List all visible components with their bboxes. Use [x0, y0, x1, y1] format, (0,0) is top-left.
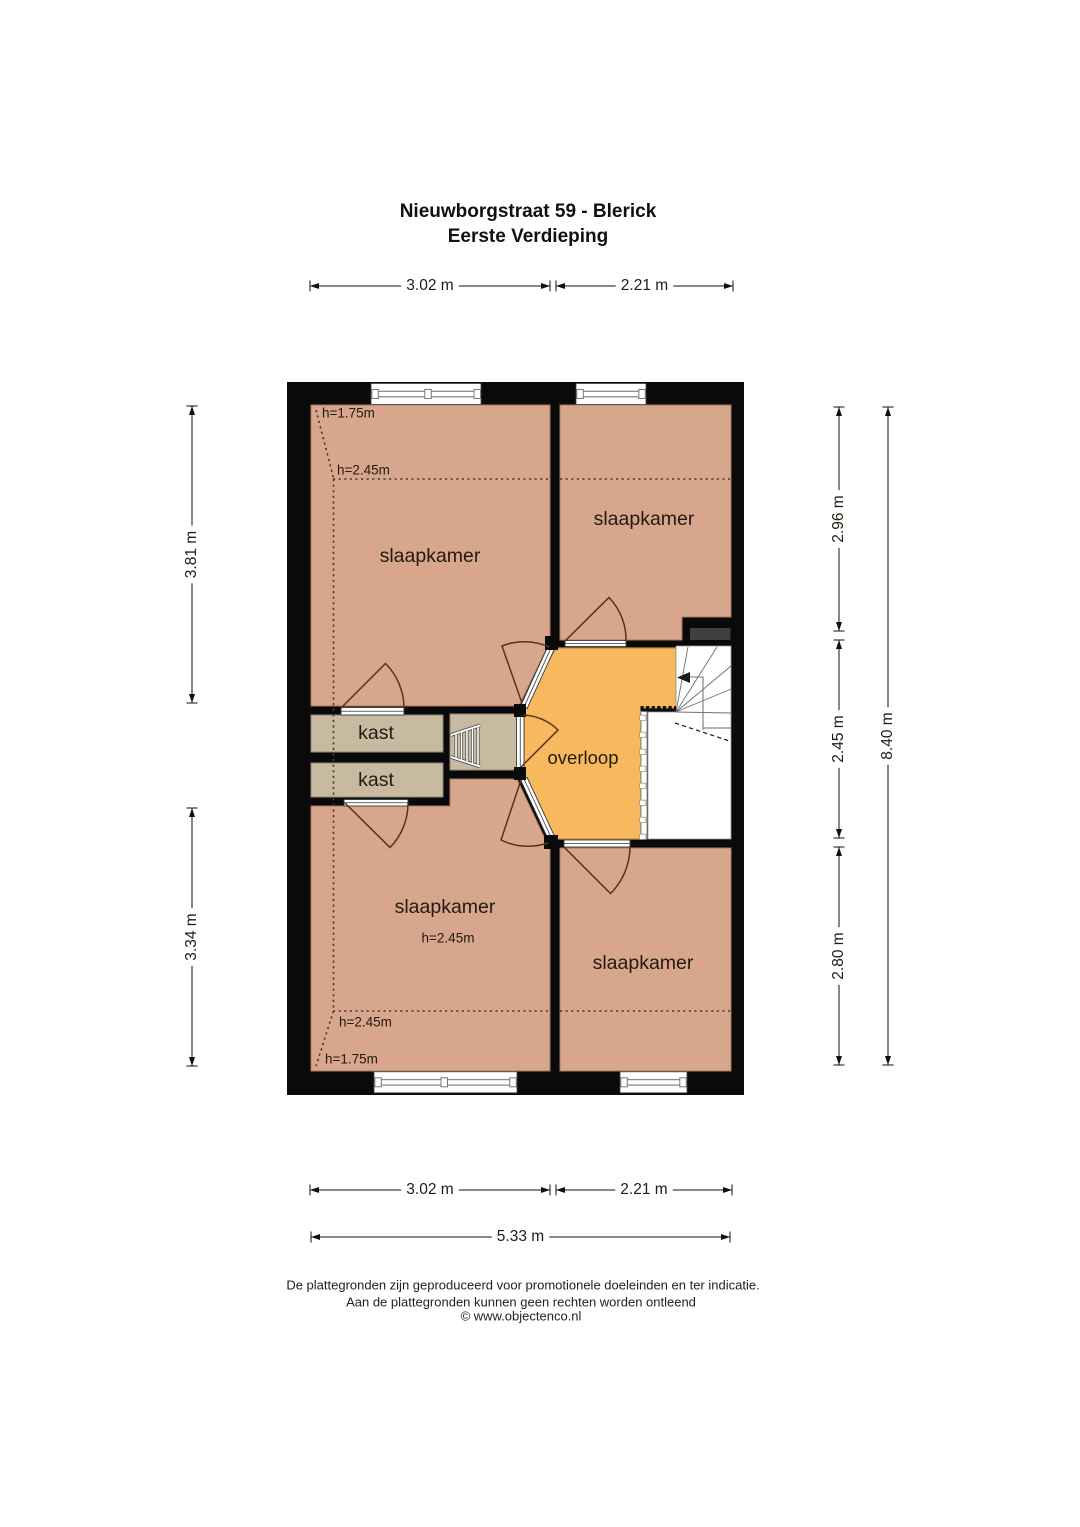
svg-text:slaapkamer: slaapkamer: [380, 545, 481, 567]
svg-text:kast: kast: [358, 722, 394, 744]
svg-text:overloop: overloop: [548, 747, 619, 768]
svg-text:h=1.75m: h=1.75m: [325, 1052, 378, 1067]
svg-text:h=2.45m: h=2.45m: [339, 1015, 392, 1030]
svg-text:3.02 m: 3.02 m: [406, 1181, 453, 1198]
svg-text:h=1.75m: h=1.75m: [322, 406, 375, 421]
svg-text:3.02 m: 3.02 m: [406, 277, 453, 294]
svg-text:2.96 m: 2.96 m: [830, 495, 847, 542]
svg-text:slaapkamer: slaapkamer: [594, 508, 695, 530]
svg-text:2.80 m: 2.80 m: [830, 932, 847, 979]
svg-text:3.81 m: 3.81 m: [183, 531, 200, 578]
svg-text:Nieuwborgstraat 59 - Blerick: Nieuwborgstraat 59 - Blerick: [400, 201, 657, 222]
svg-text:2.21 m: 2.21 m: [620, 1181, 667, 1198]
svg-text:slaapkamer: slaapkamer: [593, 952, 694, 974]
svg-text:8.40 m: 8.40 m: [879, 712, 896, 759]
svg-text:h=2.45m: h=2.45m: [337, 463, 390, 478]
svg-text:Aan de plattegronden kunnen ge: Aan de plattegronden kunnen geen rechten…: [346, 1294, 696, 1309]
svg-text:Eerste Verdieping: Eerste Verdieping: [448, 226, 609, 247]
svg-text:h=2.45m: h=2.45m: [422, 931, 475, 946]
svg-text:kast: kast: [358, 769, 394, 791]
svg-text:5.33 m: 5.33 m: [497, 1228, 544, 1245]
svg-text:© www.objectenco.nl: © www.objectenco.nl: [461, 1308, 582, 1323]
svg-text:3.34 m: 3.34 m: [183, 913, 200, 960]
svg-text:De plattegronden zijn geproduc: De plattegronden zijn geproduceerd voor …: [286, 1277, 759, 1292]
svg-text:slaapkamer: slaapkamer: [395, 896, 496, 918]
svg-text:2.21 m: 2.21 m: [621, 277, 668, 294]
svg-text:2.45 m: 2.45 m: [830, 715, 847, 762]
